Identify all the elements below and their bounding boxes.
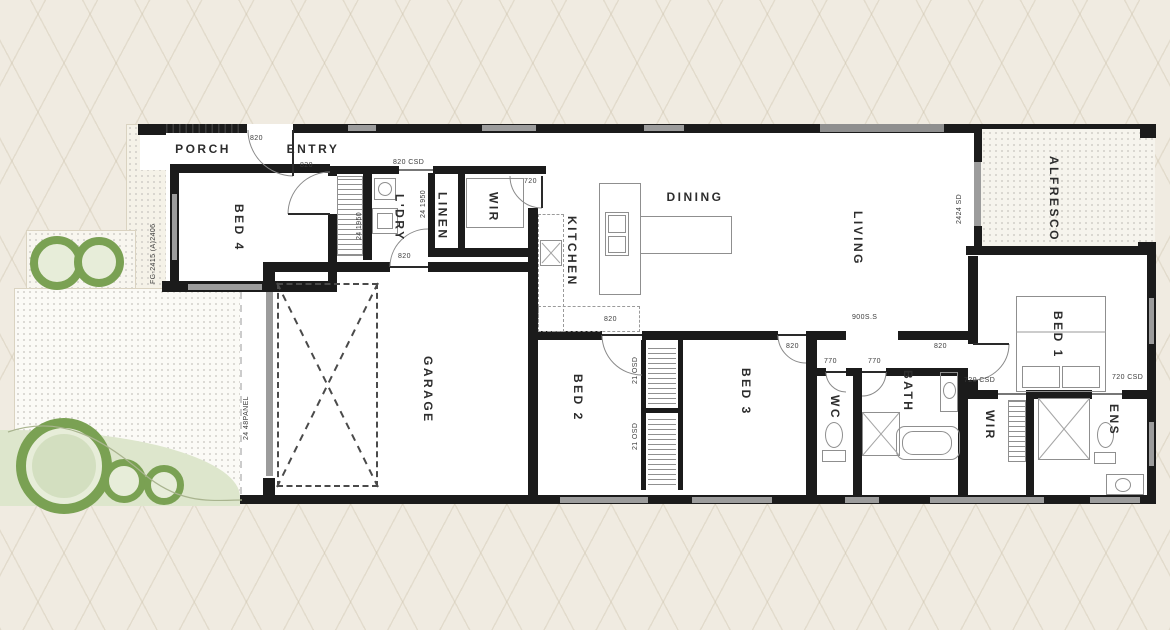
dim-label-2424-sd: 2424 SD (956, 166, 965, 224)
wall (853, 368, 862, 504)
dim-label-720-csd: 720 CSD (1112, 374, 1142, 382)
dim-label-fg-2415-a-2406: FG-2415 (A)2406 (150, 188, 159, 284)
robe-shelves (648, 344, 676, 404)
window-wc (845, 497, 879, 503)
wall (265, 262, 390, 272)
window-top-1 (348, 125, 376, 131)
dim-label-720: 720 (524, 178, 554, 186)
ens-basin (1115, 478, 1131, 492)
dim-label-900s-s: 900S.S (852, 314, 882, 322)
window-bath (930, 497, 1044, 503)
wall (978, 124, 1146, 129)
wall (528, 331, 602, 340)
wall (806, 331, 846, 340)
wall (428, 262, 532, 272)
wir-rear-shelf (1008, 400, 1026, 462)
wall (1147, 253, 1156, 504)
wall (898, 331, 970, 340)
pillow (1062, 366, 1100, 388)
sink-bowl (608, 236, 626, 253)
room-label-living: LIVING (850, 200, 866, 278)
dim-label-770: 770 (824, 358, 854, 366)
dim-label-820-csd: 820 CSD (393, 159, 423, 167)
dim-label-820: 820 (250, 135, 280, 143)
room-label-porch: PORCH (168, 142, 238, 156)
dim-label-24-1950: 24 1950 (356, 196, 365, 240)
dim-label-21-osd: 21 OSD (632, 346, 641, 384)
room-label-bath: BATH (900, 358, 916, 424)
room-label-entry: ENTRY (278, 142, 348, 156)
wall (1140, 124, 1156, 138)
room-label-wc: WC (828, 386, 842, 428)
tree (16, 418, 112, 514)
cooktop (540, 240, 562, 266)
dim-label-720-csd: 720 CSD (964, 377, 994, 385)
room-label-bed-1: BED 1 (1050, 302, 1066, 368)
garage-panel-door (266, 292, 273, 476)
window-bed2 (560, 497, 648, 503)
wall (528, 208, 538, 504)
tree (102, 459, 146, 503)
tree-core (32, 434, 96, 498)
window-bed3 (692, 497, 772, 503)
pillow (1022, 366, 1060, 388)
room-label-bed-3: BED 3 (738, 358, 754, 426)
wall (968, 256, 978, 344)
floor-alfresco (975, 124, 1155, 255)
window-top-3 (644, 125, 684, 131)
garage-door-zone (277, 283, 378, 487)
room-label-kitchen: KITCHEN (564, 200, 580, 302)
window-top-2 (482, 125, 536, 131)
wall (974, 129, 982, 162)
room-label-wir: WIR (982, 398, 998, 452)
dim-label-770: 770 (868, 358, 898, 366)
window-living (820, 124, 944, 132)
dim-label-24-1950: 24 1950 (420, 174, 429, 218)
laundry-tub-bowl (377, 213, 393, 229)
wall (328, 214, 337, 292)
wc-cistern (822, 450, 846, 462)
bathtub-inner (902, 431, 952, 455)
wall (974, 226, 982, 248)
wall (138, 124, 166, 135)
dim-label-820: 820 (786, 343, 816, 351)
window-bed1-side (1149, 298, 1154, 344)
window-ens-side (1149, 422, 1154, 466)
washer-dial (378, 182, 392, 196)
tree (74, 237, 124, 287)
room-label-garage: GARAGE (420, 340, 436, 440)
dining-table (640, 216, 732, 254)
tree (144, 465, 184, 505)
room-label-bed-4: BED 4 (231, 192, 247, 264)
dim-label-24-48panel: 24 48PANEL (243, 344, 252, 440)
wall (1122, 390, 1156, 399)
wall (641, 408, 683, 413)
dim-label-820: 820 (398, 253, 428, 261)
window-bed4-bottom (188, 284, 262, 290)
wall (458, 173, 465, 257)
sink-bowl (608, 215, 626, 233)
porch-window-hatch (166, 124, 244, 133)
room-label-bed-2: BED 2 (570, 364, 586, 432)
wall (433, 166, 546, 174)
room-label-wir: WIR (486, 182, 501, 232)
alfresco-slider (974, 162, 981, 226)
wall (263, 478, 275, 502)
ens-cistern (1094, 452, 1116, 464)
robe-shelves (648, 415, 676, 485)
dim-label-820: 820 (604, 316, 634, 324)
wall (642, 331, 778, 340)
room-label-ens: ENS (1106, 394, 1122, 446)
wall (428, 173, 435, 257)
floor-plan: PORCHENTRYBED 4L'DRYLINENWIRKITCHENDININ… (0, 0, 1170, 630)
window-ens-bottom (1090, 497, 1140, 503)
dim-label-820: 820 (934, 343, 964, 351)
bath-basin (943, 382, 956, 399)
wall (1026, 399, 1034, 504)
wall (263, 262, 275, 290)
window-bed4-side (172, 194, 177, 260)
bath-shower (862, 412, 900, 456)
room-label-dining: DINING (645, 190, 745, 204)
wall (806, 340, 817, 504)
dim-label-820: 820 (300, 162, 330, 170)
wall (641, 340, 646, 490)
wall (815, 368, 826, 376)
dim-label-21-osd: 21 OSD (632, 412, 641, 450)
ens-shower (1038, 398, 1090, 460)
wall (678, 340, 683, 490)
room-label-linen: LINEN (435, 180, 450, 252)
room-label-alfresco: ALFRESCO (1046, 144, 1062, 254)
room-label-l-dry: L'DRY (392, 180, 407, 256)
